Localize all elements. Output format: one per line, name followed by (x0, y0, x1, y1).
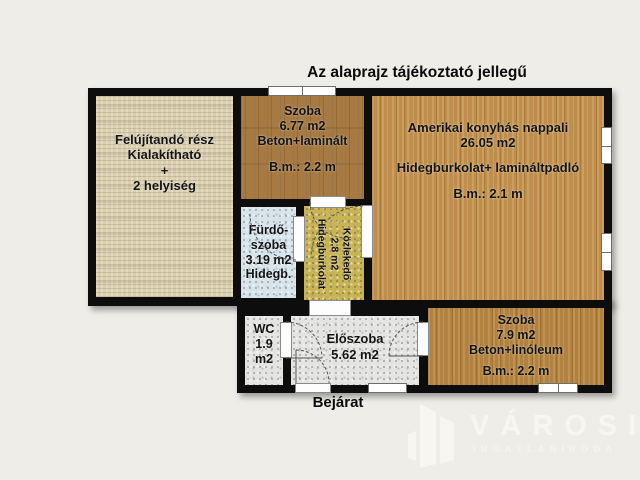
room-corridor-label: Közlekedő 2.8 m2 Hidegburkolat (315, 206, 352, 302)
room-bedroom-top: Szoba 6.77 m2 Beton+laminált B.m.: 2.2 m (241, 96, 364, 199)
room-name: Amerikai konyhás nappali (408, 120, 568, 135)
window-living-right-lower (601, 233, 612, 271)
window-living-right-upper (601, 127, 612, 164)
room-renovation: Felújítandó rész Kialakítható + 2 helyis… (96, 96, 233, 297)
room-floor-type: Beton+laminált (258, 134, 348, 149)
room-area: 5.62 m2 (331, 347, 379, 362)
room-name: Szoba (498, 313, 535, 328)
room-entry-hall: Előszoba 5.62 m2 (291, 316, 419, 385)
brand-logo-building-icon (404, 404, 464, 474)
room-label: Kialakítható (128, 147, 202, 162)
window-top-bedroom (268, 86, 336, 96)
room-area: 3.19 m2 (246, 253, 292, 268)
room-name: Fürdő- (249, 223, 289, 238)
room-name: WC (254, 322, 275, 337)
plan-disclaimer-title: Az alaprajz tájékoztató jellegű (307, 64, 527, 82)
floorplan-canvas: Az alaprajz tájékoztató jellegű Felújíta… (0, 0, 640, 480)
entrance-label: Bejárat (313, 394, 364, 411)
room-area: 2.8 m2 (328, 206, 340, 302)
window-entrance-sidelight (368, 383, 407, 393)
door-wc (280, 322, 292, 358)
room-name: Közlekedő (340, 206, 352, 302)
room-ceiling-height: B.m.: 2.2 m (483, 364, 550, 379)
door-living-room (361, 205, 373, 258)
room-label: + (161, 163, 169, 178)
window-bedroom-bottom (538, 383, 578, 393)
room-floor-type: Beton+linóleum (469, 343, 563, 358)
room-label: Felújítandó rész (115, 132, 214, 147)
door-entrance (295, 383, 331, 393)
door-bathroom (293, 216, 305, 262)
room-floor-type: Hidegburkolat+ lamináltpadló (397, 160, 579, 175)
room-area: 6.77 m2 (280, 119, 326, 134)
door-corridor-entry-hall (309, 300, 351, 316)
room-bedroom-bottom: Szoba 7.9 m2 Beton+linóleum B.m.: 2.2 m (428, 308, 604, 385)
room-area: 26.05 m2 (461, 135, 516, 150)
room-ceiling-height: B.m.: 2.1 m (453, 186, 522, 201)
room-floor-type: Hidegburkolat (315, 206, 327, 302)
room-name: Szoba (284, 104, 321, 119)
room-area: 1.9 m2 (245, 337, 283, 367)
room-name: Előszoba (326, 331, 383, 346)
room-area: 7.9 m2 (497, 328, 536, 343)
room-wc: WC 1.9 m2 (245, 316, 283, 385)
room-label: 2 helyiség (133, 178, 196, 193)
room-living-room: Amerikai konyhás nappali 26.05 m2 Hidegb… (372, 96, 604, 300)
brand-name: VÁROSI (470, 410, 640, 443)
door-bedroom-bottom (417, 322, 429, 356)
room-ceiling-height: B.m.: 2.2 m (269, 160, 336, 175)
brand-subtitle: INGATLANIRODA (473, 444, 617, 455)
room-floor-type: Hidegb. (246, 267, 292, 282)
brand-logo: VÁROSI INGATLANIRODA (404, 404, 634, 474)
room-bathroom: Fürdő- szoba 3.19 m2 Hidegb. (241, 207, 296, 298)
room-name: szoba (251, 238, 286, 253)
